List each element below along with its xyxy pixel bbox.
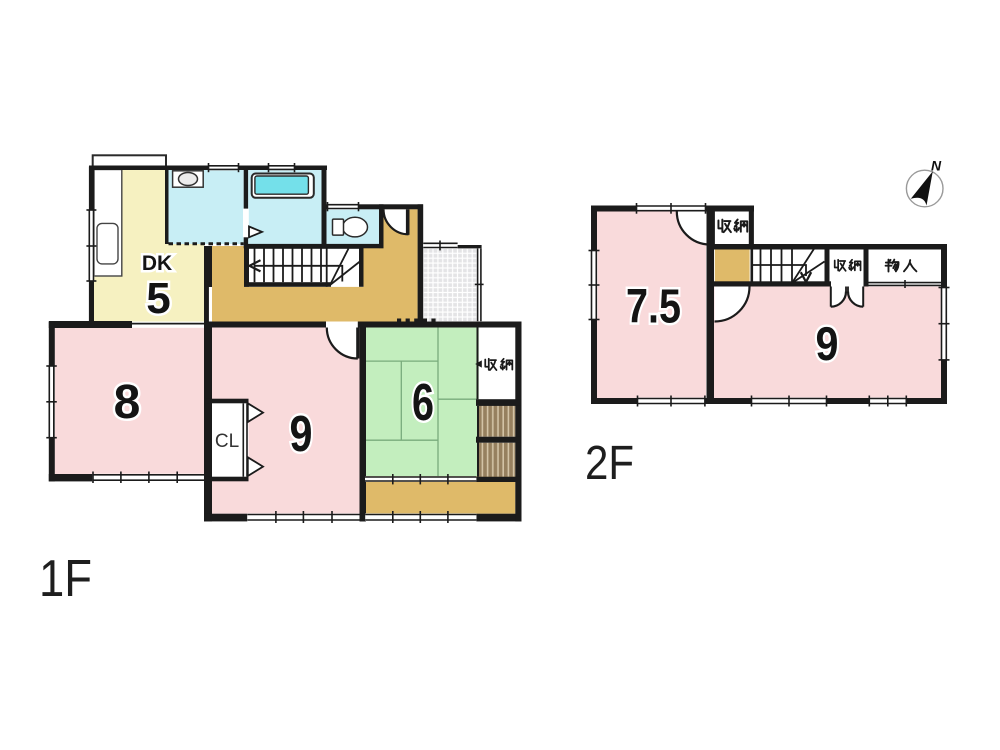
svg-text:2F: 2F <box>585 437 634 490</box>
svg-text:8: 8 <box>114 376 141 429</box>
svg-text:N: N <box>931 158 942 174</box>
svg-text:9: 9 <box>290 405 313 462</box>
svg-text:6: 6 <box>412 374 434 432</box>
svg-text:1F: 1F <box>39 550 92 608</box>
svg-text:DK: DK <box>142 252 172 275</box>
svg-text:CL: CL <box>215 431 239 452</box>
svg-text:7.5: 7.5 <box>626 281 681 334</box>
svg-text:9: 9 <box>816 317 839 370</box>
svg-text:5: 5 <box>146 274 170 323</box>
